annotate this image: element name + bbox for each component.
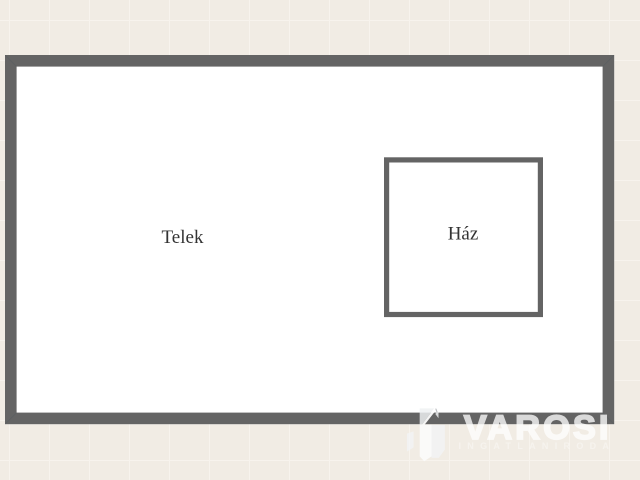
svg-text:Ház: Ház — [448, 224, 479, 245]
svg-text:Telek: Telek — [162, 227, 204, 248]
svg-text:INGATLANIRODA: INGATLANIRODA — [459, 441, 616, 451]
